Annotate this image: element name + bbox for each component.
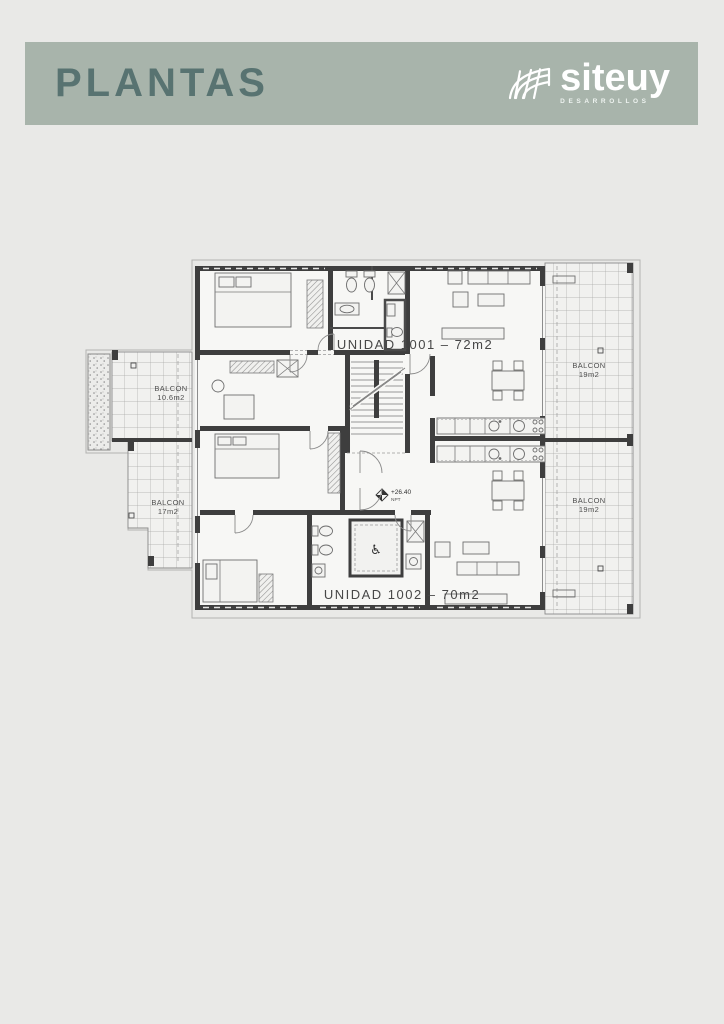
desk [224,395,254,419]
svg-text:10.6m2: 10.6m2 [157,393,184,402]
sofa [457,562,519,575]
svg-text:NPT: NPT [391,497,401,503]
svg-text:BALCON: BALCON [572,496,605,505]
balcony-label-upper-left: BALCON 10.6m2 [154,384,187,402]
bed [215,273,291,327]
wardrobe [277,360,298,377]
armchair [453,292,468,307]
closet [328,433,340,493]
sink [406,554,421,569]
balcony-upper-right [545,263,633,441]
coffee-table [463,542,489,554]
logo-wordmark: siteuy [560,62,670,94]
svg-text:+26.40: +26.40 [391,489,411,496]
closet [259,574,273,602]
brochure-page: PLANTAS siteuy DESARROLLOS [0,0,724,1024]
floor-plan: +26.40 NPT [85,258,655,624]
balcony-lower-right [545,441,633,614]
coffee-table [478,294,504,306]
page-title: PLANTAS [55,61,269,106]
wheelchair-icon: ♿ [370,543,382,558]
kitchen-1002 [437,446,545,462]
sink [312,564,325,577]
bed [203,560,257,602]
unit-1002-label: UNIDAD 1002 – 70m2 [324,587,480,602]
closet [307,280,323,328]
dome-grid-icon [507,65,553,103]
svg-text:BALCON: BALCON [154,384,187,393]
unit-1001-label: UNIDAD 1001 – 72m2 [337,337,493,352]
svg-text:19m2: 19m2 [579,370,599,379]
bed [215,434,279,478]
accessible-shower: ♿ [350,520,402,576]
armchair [435,542,450,557]
planter [88,354,110,450]
svg-text:BALCON: BALCON [572,361,605,370]
logo-tagline: DESARROLLOS [560,98,649,105]
header-banner: PLANTAS siteuy DESARROLLOS [25,42,698,125]
closet [230,361,274,373]
floor-plan-drawing: +26.40 NPT [85,258,655,624]
sofa [468,271,530,284]
sink [387,304,395,316]
siteuy-logo: siteuy DESARROLLOS [507,62,670,105]
kitchen-1001 [437,418,545,434]
shower [388,272,405,294]
shower [407,521,424,542]
svg-text:BALCON: BALCON [151,498,184,507]
svg-text:19m2: 19m2 [579,505,599,514]
side-table [448,271,462,284]
svg-text:17m2: 17m2 [158,507,178,516]
